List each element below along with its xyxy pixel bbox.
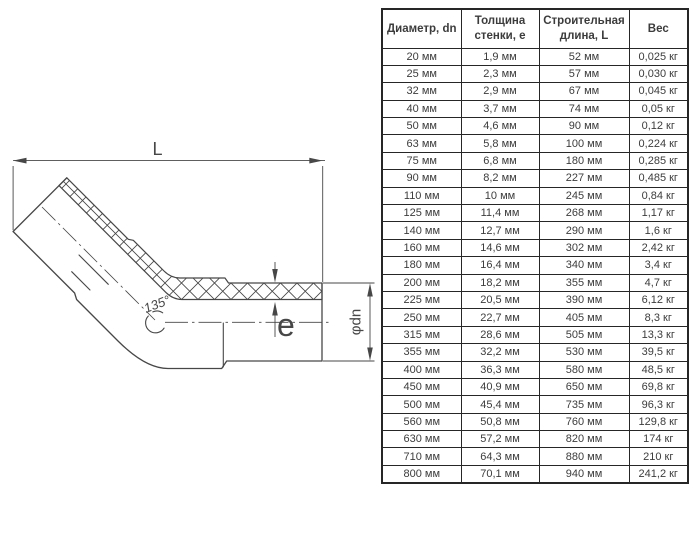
table-cell: 45,4 мм	[461, 396, 539, 413]
bore-detail-line-1	[79, 255, 108, 284]
table-cell: 160 мм	[382, 239, 461, 256]
table-cell: 3,7 мм	[461, 100, 539, 117]
table-cell: 32,2 мм	[461, 344, 539, 361]
dim-dn-arrow-up	[367, 283, 373, 296]
pipe-wall-hatched-section	[59, 178, 322, 300]
table-cell: 174 кг	[629, 431, 688, 448]
table-row: 180 мм16,4 мм340 мм3,4 кг	[382, 257, 688, 274]
table-row: 710 мм64,3 мм880 мм210 кг	[382, 448, 688, 465]
table-cell: 710 мм	[382, 448, 461, 465]
table-cell: 74 мм	[539, 100, 629, 117]
table-row: 40 мм3,7 мм74 мм0,05 кг	[382, 100, 688, 117]
table-cell: 10 мм	[461, 187, 539, 204]
table-cell: 530 мм	[539, 344, 629, 361]
table-cell: 2,42 кг	[629, 239, 688, 256]
dim-L-arrow-right	[309, 158, 322, 164]
table-cell: 40,9 мм	[461, 378, 539, 395]
table-row: 560 мм50,8 мм760 мм129,8 кг	[382, 413, 688, 430]
table-cell: 20 мм	[382, 48, 461, 65]
table-row: 140 мм12,7 мм290 мм1,6 кг	[382, 222, 688, 239]
table-cell: 630 мм	[382, 431, 461, 448]
table-cell: 8,3 кг	[629, 309, 688, 326]
table-cell: 450 мм	[382, 378, 461, 395]
table-cell: 315 мм	[382, 326, 461, 343]
table-cell: 25 мм	[382, 65, 461, 82]
table-cell: 75 мм	[382, 152, 461, 169]
spec-table-body: 20 мм1,9 мм52 мм0,025 кг25 мм2,3 мм57 мм…	[382, 48, 688, 483]
table-row: 355 мм32,2 мм530 мм39,5 кг	[382, 344, 688, 361]
dim-L-arrow-left	[13, 158, 26, 164]
dim-e-arrow-down	[272, 269, 278, 283]
table-cell: 11,4 мм	[461, 205, 539, 222]
table-cell: 52 мм	[539, 48, 629, 65]
table-cell: 355 мм	[382, 344, 461, 361]
table-cell: 302 мм	[539, 239, 629, 256]
table-cell: 735 мм	[539, 396, 629, 413]
table-row: 200 мм18,2 мм355 мм4,7 кг	[382, 274, 688, 291]
table-cell: 6,8 мм	[461, 152, 539, 169]
table-cell: 13,3 кг	[629, 326, 688, 343]
table-cell: 180 мм	[382, 257, 461, 274]
table-cell: 100 мм	[539, 135, 629, 152]
angle-label: 135°	[142, 292, 172, 316]
table-cell: 800 мм	[382, 465, 461, 482]
table-cell: 129,8 кг	[629, 413, 688, 430]
spec-table-container: Диаметр, dn Толщина стенки, e Строительн…	[381, 8, 689, 484]
table-cell: 18,2 мм	[461, 274, 539, 291]
table-cell: 6,12 кг	[629, 291, 688, 308]
table-cell: 560 мм	[382, 413, 461, 430]
table-cell: 0,84 кг	[629, 187, 688, 204]
header-row: Диаметр, dn Толщина стенки, e Строительн…	[382, 9, 688, 48]
table-cell: 0,025 кг	[629, 48, 688, 65]
table-cell: 505 мм	[539, 326, 629, 343]
table-cell: 12,7 мм	[461, 222, 539, 239]
table-row: 90 мм8,2 мм227 мм0,485 кг	[382, 170, 688, 187]
table-cell: 880 мм	[539, 448, 629, 465]
table-cell: 16,4 мм	[461, 257, 539, 274]
table-cell: 405 мм	[539, 309, 629, 326]
table-row: 75 мм6,8 мм180 мм0,285 кг	[382, 152, 688, 169]
table-row: 110 мм10 мм245 мм0,84 кг	[382, 187, 688, 204]
table-cell: 0,045 кг	[629, 83, 688, 100]
table-cell: 820 мм	[539, 431, 629, 448]
spec-table-head: Диаметр, dn Толщина стенки, e Строительн…	[382, 9, 688, 48]
table-cell: 67 мм	[539, 83, 629, 100]
header-length: Строительная длина, L	[539, 9, 629, 48]
table-cell: 64,3 мм	[461, 448, 539, 465]
table-cell: 28,6 мм	[461, 326, 539, 343]
table-row: 630 мм57,2 мм820 мм174 кг	[382, 431, 688, 448]
header-wall-thickness: Толщина стенки, e	[461, 9, 539, 48]
table-cell: 50,8 мм	[461, 413, 539, 430]
table-row: 32 мм2,9 мм67 мм0,045 кг	[382, 83, 688, 100]
table-cell: 48,5 кг	[629, 361, 688, 378]
table-cell: 580 мм	[539, 361, 629, 378]
table-cell: 1,6 кг	[629, 222, 688, 239]
table-cell: 140 мм	[382, 222, 461, 239]
table-cell: 241,2 кг	[629, 465, 688, 482]
table-cell: 57 мм	[539, 65, 629, 82]
table-cell: 8,2 мм	[461, 170, 539, 187]
catalog-page: 135° L e φdn Диаметр, dn Т	[0, 0, 700, 543]
table-cell: 5,8 мм	[461, 135, 539, 152]
header-diameter: Диаметр, dn	[382, 9, 461, 48]
table-cell: 69,8 кг	[629, 378, 688, 395]
table-cell: 90 мм	[382, 170, 461, 187]
table-cell: 250 мм	[382, 309, 461, 326]
table-cell: 90 мм	[539, 118, 629, 135]
table-cell: 500 мм	[382, 396, 461, 413]
table-cell: 125 мм	[382, 205, 461, 222]
table-cell: 0,030 кг	[629, 65, 688, 82]
elbow-technical-drawing: 135° L e φdn	[0, 0, 380, 543]
spec-table: Диаметр, dn Толщина стенки, e Строительн…	[381, 8, 689, 484]
table-row: 250 мм22,7 мм405 мм8,3 кг	[382, 309, 688, 326]
bore-detail-line-2	[72, 272, 90, 290]
table-cell: 36,3 мм	[461, 361, 539, 378]
table-row: 225 мм20,5 мм390 мм6,12 кг	[382, 291, 688, 308]
table-cell: 96,3 кг	[629, 396, 688, 413]
table-cell: 940 мм	[539, 465, 629, 482]
table-cell: 50 мм	[382, 118, 461, 135]
table-row: 20 мм1,9 мм52 мм0,025 кг	[382, 48, 688, 65]
table-cell: 180 мм	[539, 152, 629, 169]
table-cell: 4,7 кг	[629, 274, 688, 291]
table-cell: 2,9 мм	[461, 83, 539, 100]
table-cell: 245 мм	[539, 187, 629, 204]
table-cell: 760 мм	[539, 413, 629, 430]
table-cell: 0,12 кг	[629, 118, 688, 135]
table-cell: 1,17 кг	[629, 205, 688, 222]
table-cell: 32 мм	[382, 83, 461, 100]
table-cell: 340 мм	[539, 257, 629, 274]
table-cell: 22,7 мм	[461, 309, 539, 326]
table-cell: 210 кг	[629, 448, 688, 465]
table-cell: 0,485 кг	[629, 170, 688, 187]
dim-e-label: e	[277, 307, 295, 343]
table-cell: 227 мм	[539, 170, 629, 187]
table-cell: 0,285 кг	[629, 152, 688, 169]
table-cell: 650 мм	[539, 378, 629, 395]
table-cell: 110 мм	[382, 187, 461, 204]
table-cell: 57,2 мм	[461, 431, 539, 448]
header-weight: Вес	[629, 9, 688, 48]
table-cell: 70,1 мм	[461, 465, 539, 482]
table-row: 400 мм36,3 мм580 мм48,5 кг	[382, 361, 688, 378]
table-cell: 355 мм	[539, 274, 629, 291]
table-cell: 1,9 мм	[461, 48, 539, 65]
table-row: 125 мм11,4 мм268 мм1,17 кг	[382, 205, 688, 222]
table-cell: 390 мм	[539, 291, 629, 308]
dim-dn-arrow-down	[367, 348, 373, 361]
table-cell: 3,4 кг	[629, 257, 688, 274]
table-cell: 400 мм	[382, 361, 461, 378]
dim-dn-label: φdn	[348, 309, 365, 335]
table-row: 800 мм70,1 мм940 мм241,2 кг	[382, 465, 688, 482]
table-row: 63 мм5,8 мм100 мм0,224 кг	[382, 135, 688, 152]
dim-L-label: L	[152, 139, 162, 159]
table-row: 25 мм2,3 мм57 мм0,030 кг	[382, 65, 688, 82]
table-cell: 200 мм	[382, 274, 461, 291]
table-cell: 14,6 мм	[461, 239, 539, 256]
table-cell: 40 мм	[382, 100, 461, 117]
table-row: 315 мм28,6 мм505 мм13,3 кг	[382, 326, 688, 343]
table-row: 160 мм14,6 мм302 мм2,42 кг	[382, 239, 688, 256]
table-cell: 2,3 мм	[461, 65, 539, 82]
table-cell: 20,5 мм	[461, 291, 539, 308]
table-cell: 4,6 мм	[461, 118, 539, 135]
table-row: 450 мм40,9 мм650 мм69,8 кг	[382, 378, 688, 395]
table-row: 50 мм4,6 мм90 мм0,12 кг	[382, 118, 688, 135]
table-cell: 268 мм	[539, 205, 629, 222]
table-cell: 63 мм	[382, 135, 461, 152]
table-cell: 0,05 кг	[629, 100, 688, 117]
table-cell: 225 мм	[382, 291, 461, 308]
table-cell: 290 мм	[539, 222, 629, 239]
table-cell: 0,224 кг	[629, 135, 688, 152]
table-cell: 39,5 кг	[629, 344, 688, 361]
table-row: 500 мм45,4 мм735 мм96,3 кг	[382, 396, 688, 413]
